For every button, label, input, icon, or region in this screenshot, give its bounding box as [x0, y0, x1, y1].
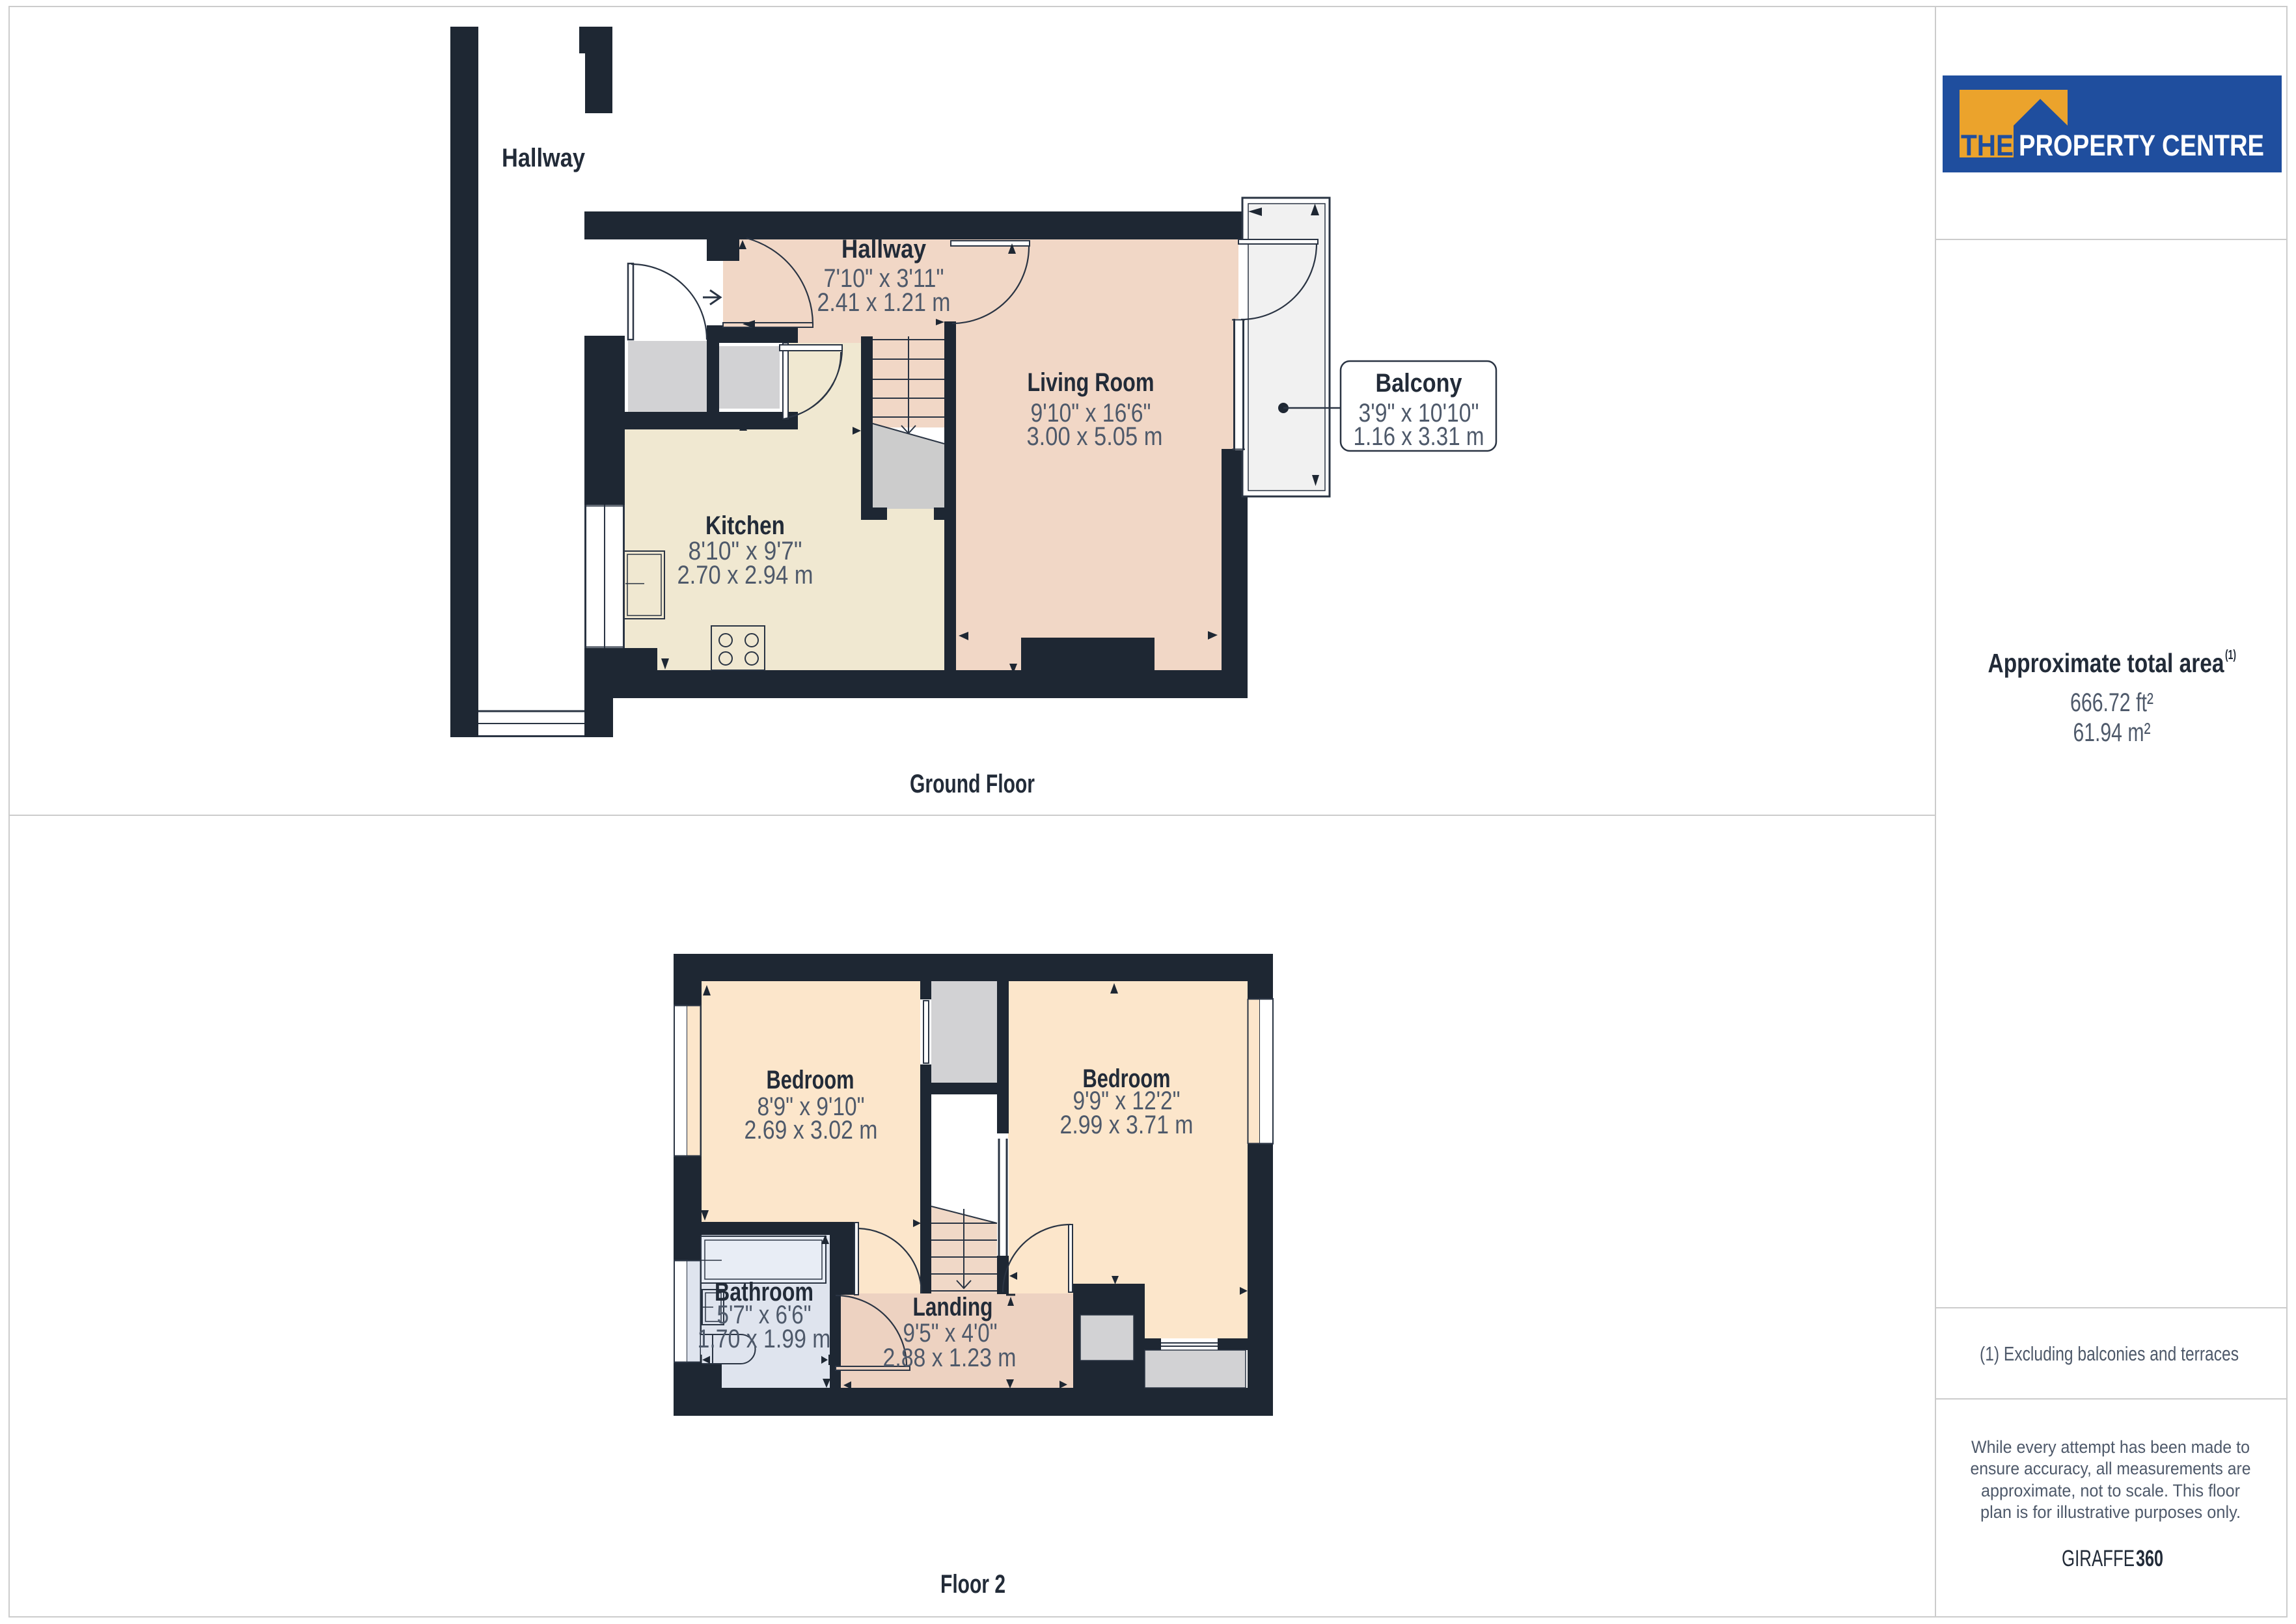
svg-text:Hallway: Hallway	[841, 235, 927, 264]
svg-text:2.41 x 1.21 m: 2.41 x 1.21 m	[817, 288, 951, 317]
svg-text:Kitchen: Kitchen	[705, 511, 785, 540]
svg-text:Hallway: Hallway	[502, 144, 586, 172]
svg-text:Floor 2: Floor 2	[940, 1570, 1005, 1599]
svg-text:Balcony: Balcony	[1376, 369, 1463, 398]
svg-text:approximate, not to scale. Thi: approximate, not to scale. This floor	[1981, 1481, 2240, 1500]
svg-text:plan is for illustrative purpo: plan is for illustrative purposes only.	[1980, 1502, 2241, 1522]
svg-text:Bedroom: Bedroom	[767, 1066, 854, 1094]
svg-text:3.00 x 5.05 m: 3.00 x 5.05 m	[1027, 422, 1163, 451]
svg-text:PROPERTY CENTRE: PROPERTY CENTRE	[2019, 129, 2264, 162]
svg-text:61.94 m²: 61.94 m²	[2073, 718, 2151, 747]
svg-text:While every attempt has been m: While every attempt has been made to	[1971, 1437, 2250, 1457]
svg-text:THE: THE	[1961, 129, 2014, 162]
svg-text:2.88 x 1.23 m: 2.88 x 1.23 m	[883, 1344, 1017, 1372]
svg-text:GIRAFFE: GIRAFFE	[2062, 1546, 2135, 1571]
svg-text:Ground Floor: Ground Floor	[910, 770, 1035, 798]
svg-text:Living Room: Living Room	[1028, 368, 1155, 397]
svg-text:1.16 x 3.31 m: 1.16 x 3.31 m	[1354, 422, 1484, 451]
svg-text:(1): (1)	[2225, 648, 2236, 662]
svg-text:360: 360	[2136, 1546, 2163, 1571]
svg-text:2.69 x 3.02 m: 2.69 x 3.02 m	[745, 1116, 878, 1144]
svg-text:ensure accuracy, all measureme: ensure accuracy, all measurements are	[1971, 1459, 2251, 1478]
svg-text:666.72 ft²: 666.72 ft²	[2070, 688, 2153, 717]
svg-text:2.70 x 2.94 m: 2.70 x 2.94 m	[677, 561, 813, 589]
svg-text:(1) Excluding balconies and te: (1) Excluding balconies and terraces	[1980, 1342, 2239, 1365]
svg-text:Approximate total area: Approximate total area	[1988, 648, 2225, 678]
svg-text:Landing: Landing	[913, 1293, 993, 1321]
svg-text:2.99 x 3.71 m: 2.99 x 3.71 m	[1060, 1111, 1194, 1139]
svg-text:1.70 x 1.99 m: 1.70 x 1.99 m	[698, 1325, 831, 1353]
